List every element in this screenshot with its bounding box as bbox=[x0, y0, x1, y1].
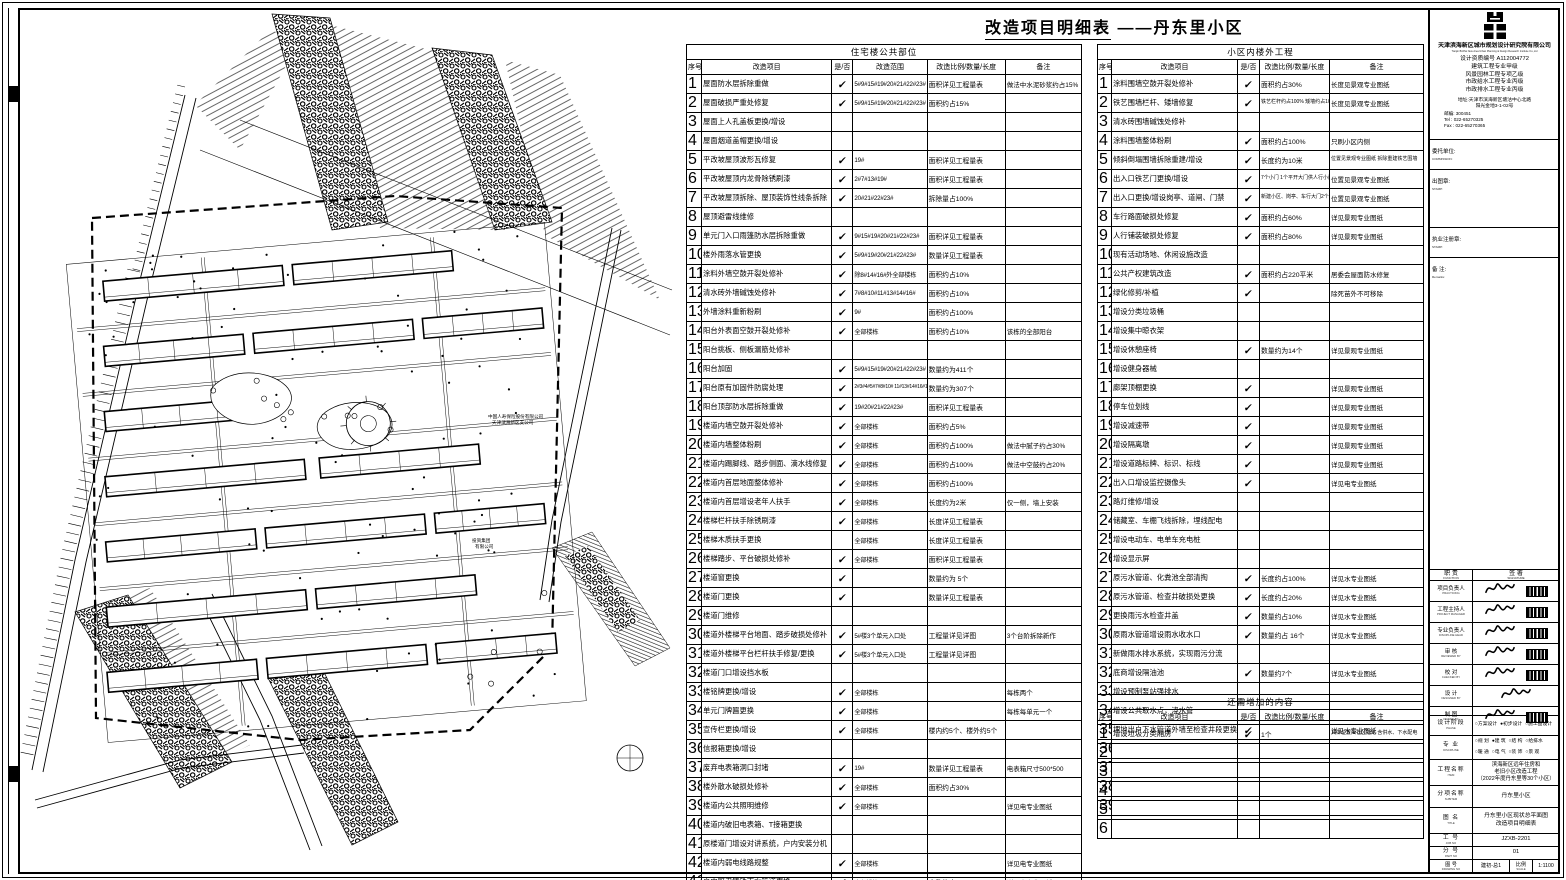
cell-item: 废弃电表箱洞口封堵 bbox=[702, 759, 832, 778]
cell-note: 仅一侧，墙上安装 bbox=[1005, 493, 1081, 512]
cell-ratio: 楼内约5个、楼外约5个 bbox=[927, 721, 1005, 740]
outdoor-header: 是/否 bbox=[1238, 60, 1260, 75]
cell-n: 9 bbox=[687, 227, 702, 246]
cell-ratio: 长度约为10米 bbox=[1260, 151, 1330, 170]
cell-scope: 全部楼栋 bbox=[853, 512, 927, 531]
check-icon: ✔ bbox=[837, 592, 847, 604]
cell-scope: 全部楼栋 bbox=[853, 778, 927, 797]
table-row: 15增设休憩座椅✔数量约为14个详见景观专业图纸 bbox=[1098, 341, 1424, 360]
cell-item: 更换雨污水检查井盖 bbox=[1112, 607, 1238, 626]
cell-note: 详见水专业图纸 bbox=[1005, 873, 1081, 880]
cell-note bbox=[1330, 531, 1424, 550]
role-name-en: PROJECT MANAGER bbox=[1437, 613, 1465, 616]
cell-yes bbox=[832, 113, 853, 132]
cell-item: 阳台挑板、侧板漏筋处修补 bbox=[702, 341, 832, 360]
cell-n: 13 bbox=[687, 303, 702, 322]
cell-yes: ✔ bbox=[1238, 664, 1260, 683]
check-icon: ✔ bbox=[837, 630, 847, 642]
cell-scope: 5#9#15#19#20#21#22#23# bbox=[853, 360, 927, 379]
cell-yes: ✔ bbox=[1238, 417, 1260, 436]
check-icon: ✔ bbox=[837, 98, 847, 110]
table-row: 22楼道内首层地面整体修补✔全部楼栋面积约占100% bbox=[687, 474, 1082, 493]
cell-ratio: 面积约占100% bbox=[927, 436, 1005, 455]
table-row: 2铁艺围墙栏杆、矮墙修复✔铁艺栏杆约占100% 矮墙约占10%长度见景观专业图纸 bbox=[1098, 94, 1424, 113]
table-row: 34单元门牌匾更换✔全部楼栋每栋每单元一个 bbox=[687, 702, 1082, 721]
table-row: 17廊架顶棚更换✔详见景观专业图纸 bbox=[1098, 379, 1424, 398]
cell-n: 20 bbox=[1098, 436, 1112, 455]
cell-ratio: 数量约为14个 bbox=[1260, 341, 1330, 360]
cell-n: 25 bbox=[687, 531, 702, 550]
cell-note bbox=[1005, 721, 1081, 740]
remarks-section: 备 注:Remarks: bbox=[1430, 258, 1559, 570]
cell-n: 40 bbox=[687, 816, 702, 835]
check-icon: ✔ bbox=[837, 326, 847, 338]
outdoor-header: 序号 bbox=[1098, 60, 1112, 75]
table-row: 9人行铺装破损处修复✔面积约占80%详见景观专业图纸 bbox=[1098, 227, 1424, 246]
function-header: 职 责FUNCTION bbox=[1430, 570, 1473, 580]
additional-header: 改造比例/数量/长度 bbox=[1260, 710, 1330, 725]
cell-note: 长度见景观专业图纸 bbox=[1330, 94, 1424, 113]
cell-yes: ✔ bbox=[1238, 265, 1260, 284]
cell-yes: ✔ bbox=[832, 189, 853, 208]
cell-scope: 9# bbox=[853, 303, 927, 322]
cell-item: 楼道内踢脚线、踏步侧面、滴水线修复 bbox=[702, 455, 832, 474]
cell-yes: ✔ bbox=[832, 512, 853, 531]
signature-area bbox=[1473, 623, 1559, 643]
role-label: 审 核REVIEWED BY bbox=[1430, 644, 1473, 664]
table-row: 43户内厨卫铸铁下水管道更换✔全部楼栋户数约占10%详见水专业图纸 bbox=[687, 873, 1082, 880]
table-row: 25增设电动车、电单车充电桩 bbox=[1098, 531, 1424, 550]
signature-area bbox=[1473, 602, 1559, 622]
cell-ratio: 数量约占10% bbox=[1260, 607, 1330, 626]
table-row: 37废弃电表箱洞口封堵✔19#数量详见工程量表电表箱尺寸500*500 bbox=[687, 759, 1082, 778]
cell-yes bbox=[832, 835, 853, 854]
cell-n: 12 bbox=[687, 284, 702, 303]
cell-ratio bbox=[1260, 782, 1330, 801]
cell-n: 6 bbox=[1098, 820, 1112, 839]
cell-n: 29 bbox=[687, 607, 702, 626]
cell-n: 33 bbox=[687, 683, 702, 702]
cell-yes: ✔ bbox=[832, 265, 853, 284]
table-row: 9单元门入口雨篷防水层拆除重做✔9#15#19#20#21#22#23#面积详见… bbox=[687, 227, 1082, 246]
cell-yes: ✔ bbox=[1238, 151, 1260, 170]
cell-yes: ✔ bbox=[832, 493, 853, 512]
cell-n: 19 bbox=[1098, 417, 1112, 436]
cell-yes: ✔ bbox=[1238, 626, 1260, 645]
cell-note: 详见景观专业图纸 bbox=[1330, 379, 1424, 398]
signature-area bbox=[1473, 665, 1559, 685]
cell-ratio bbox=[1260, 113, 1330, 132]
cell-ratio: 长度详见工程量表 bbox=[927, 531, 1005, 550]
cell-note bbox=[1330, 512, 1424, 531]
cell-item: 增设健身器械 bbox=[1112, 360, 1238, 379]
cell-yes: ✔ bbox=[832, 474, 853, 493]
cell-n: 36 bbox=[687, 740, 702, 759]
cell-scope bbox=[853, 588, 927, 607]
check-icon: ✔ bbox=[837, 364, 847, 376]
table-row: 7出入口更换/增设岗亭、道闸、门禁✔新建小区、岗亭、车行大门2个， 道闸2个、各… bbox=[1098, 189, 1424, 208]
cell-item: 清水砖外墙碱蚀处修补 bbox=[702, 284, 832, 303]
cell-note: 每栋两个 bbox=[1005, 683, 1081, 702]
cell-yes bbox=[1238, 322, 1260, 341]
signature-header: 签 署SIGNATURE bbox=[1473, 570, 1559, 580]
cell-ratio bbox=[927, 797, 1005, 816]
cell-note bbox=[1005, 284, 1081, 303]
cell-item: 楼道内首层地面整体修补 bbox=[702, 474, 832, 493]
cell-item: 出入口更换/增设岗亭、道闸、门禁 bbox=[1112, 189, 1238, 208]
cell-n: 29 bbox=[1098, 607, 1112, 626]
cell-ratio bbox=[927, 113, 1005, 132]
cell-ratio bbox=[1260, 820, 1330, 839]
scale-value: 1:1100 bbox=[1533, 860, 1559, 874]
cell-item: 新做雨水排水系统，实现雨污分流 bbox=[1112, 645, 1238, 664]
cell-note: 每栋每单元一个 bbox=[1005, 702, 1081, 721]
cell-n: 8 bbox=[1098, 208, 1112, 227]
cell-n: 6 bbox=[687, 170, 702, 189]
cell-ratio: 数量详见工程量表 bbox=[927, 588, 1005, 607]
cell-n: 21 bbox=[1098, 455, 1112, 474]
check-icon: ✔ bbox=[837, 459, 847, 471]
cell-note bbox=[1005, 588, 1081, 607]
cell-yes: ✔ bbox=[832, 417, 853, 436]
cell-ratio: 面积约占10% bbox=[927, 284, 1005, 303]
role-name-en: PRACTICING bbox=[1442, 592, 1459, 595]
cell-note bbox=[1330, 645, 1424, 664]
cell-yes: ✔ bbox=[1238, 569, 1260, 588]
cell-note: 居委会屋面防水修复 bbox=[1330, 265, 1424, 284]
cell-item: 信报箱更换/增设 bbox=[702, 740, 832, 759]
cell-note bbox=[1330, 360, 1424, 379]
cell-item: 楼道外楼梯平台栏杆扶手修复/更换 bbox=[702, 645, 832, 664]
check-icon: ✔ bbox=[837, 174, 847, 186]
cell-ratio: 长度约占100% bbox=[1260, 569, 1330, 588]
check-icon: ✔ bbox=[837, 269, 847, 281]
cell-note: 电表箱尺寸500*500 bbox=[1005, 759, 1081, 778]
cell-ratio: 面积约占15% bbox=[927, 94, 1005, 113]
cell-note: 详见水专业图纸 bbox=[1330, 664, 1424, 683]
cell-ratio: 面积约占220平米 bbox=[1260, 265, 1330, 284]
cell-ratio bbox=[1260, 246, 1330, 265]
table-row: 5 bbox=[1098, 801, 1424, 820]
cell-n: 4 bbox=[1098, 782, 1112, 801]
cell-n: 35 bbox=[687, 721, 702, 740]
cell-note: 3个台阶拆除新作 bbox=[1005, 626, 1081, 645]
cell-n: 23 bbox=[687, 493, 702, 512]
drawing-sheet: 中国人寿保险股份有限公司天津滨海新区支公司 投资集团有限公司 改造项目明细表 —… bbox=[0, 0, 1566, 880]
table-row: 6出入口铁艺门更换/增设✔7个小门 1个平开大门供人行小门1处位置见景观专业图纸 bbox=[1098, 170, 1424, 189]
cell-ratio bbox=[1260, 493, 1330, 512]
cell-n: 17 bbox=[1098, 379, 1112, 398]
table-row: 28原污水管道、检查井破损处更换✔长度约占20%详见水专业图纸 bbox=[1098, 588, 1424, 607]
cell-ratio: 拆除量占100% bbox=[927, 189, 1005, 208]
check-icon: ✔ bbox=[1244, 269, 1254, 281]
cell-item bbox=[1112, 801, 1238, 820]
check-icon: ✔ bbox=[837, 801, 847, 813]
cell-item: 宣传栏更换/增设 bbox=[702, 721, 832, 740]
role-label: 专业负责人DISCIPLINE HEAD bbox=[1430, 623, 1473, 643]
check-icon: ✔ bbox=[837, 440, 847, 452]
cell-item bbox=[1112, 744, 1238, 763]
cell-n: 1 bbox=[687, 75, 702, 94]
cell-scope: 全部楼栋 bbox=[853, 531, 927, 550]
role-label: 工程主持人PROJECT MANAGER bbox=[1430, 602, 1473, 622]
cell-ratio: 面积约占60% bbox=[1260, 208, 1330, 227]
cell-item: 绿化修剪/补植 bbox=[1112, 284, 1238, 303]
cell-yes: ✔ bbox=[832, 683, 853, 702]
check-icon: ✔ bbox=[1244, 212, 1254, 224]
cell-scope: 5#9#19#20#21#22#23# bbox=[853, 246, 927, 265]
cell-n: 32 bbox=[1098, 664, 1112, 683]
check-icon: ✔ bbox=[1244, 592, 1254, 604]
part-number-value: 01 bbox=[1473, 847, 1559, 859]
check-icon: ✔ bbox=[837, 725, 847, 737]
drawing-title-value: 丹东里小区现状总平面图 改造项目明细表 bbox=[1473, 808, 1559, 833]
check-icon: ✔ bbox=[1244, 174, 1254, 186]
check-icon: ✔ bbox=[837, 307, 847, 319]
job-number-section: 工 号JOB NO JZXB-2201 bbox=[1430, 834, 1559, 847]
residential-header: 改造比例/数量/长度 bbox=[927, 60, 1005, 75]
cell-note: 详见电专业图纸 bbox=[1330, 474, 1424, 493]
cell-n: 25 bbox=[1098, 531, 1112, 550]
cell-n: 22 bbox=[1098, 474, 1112, 493]
cell-item: 楼道门口增设挡水板 bbox=[702, 664, 832, 683]
cell-item: 增设显示屏 bbox=[1112, 550, 1238, 569]
phase-section: 设计阶段PHASE ○方案设计●初步设计○施工图设计 bbox=[1430, 716, 1559, 736]
cell-yes: ✔ bbox=[832, 227, 853, 246]
cell-note bbox=[1005, 474, 1081, 493]
frame-mark-bottom bbox=[9, 766, 18, 782]
cell-note bbox=[1005, 816, 1081, 835]
cell-ratio bbox=[1260, 512, 1330, 531]
cell-n: 15 bbox=[1098, 341, 1112, 360]
check-icon: ✔ bbox=[1244, 136, 1254, 148]
role-label: 设 计DESIGNED BY bbox=[1430, 686, 1473, 706]
drawing-number-section: 图 号DRAWING NO 建初-总1 比例SCALE 1:1100 bbox=[1430, 860, 1559, 874]
cell-item: 出入口增设监控摄像头 bbox=[1112, 474, 1238, 493]
cell-note bbox=[1005, 569, 1081, 588]
cell-yes: ✔ bbox=[1238, 94, 1260, 113]
cell-note bbox=[1330, 801, 1424, 820]
check-icon: ✔ bbox=[1244, 193, 1254, 205]
cell-item: 楼梯木质扶手更换 bbox=[702, 531, 832, 550]
cell-item: 涂料围墙空鼓开裂处修补 bbox=[1112, 75, 1238, 94]
cell-n: 13 bbox=[1098, 303, 1112, 322]
cell-ratio bbox=[1260, 303, 1330, 322]
table-row: 13增设分类垃圾桶 bbox=[1098, 303, 1424, 322]
cell-n: 3 bbox=[1098, 113, 1112, 132]
cell-yes bbox=[1238, 645, 1260, 664]
cell-yes: ✔ bbox=[832, 151, 853, 170]
cell-ratio: 面积约占100% bbox=[1260, 132, 1330, 151]
stamp-section: 出图章:STAMP: bbox=[1430, 170, 1559, 228]
cell-n: 28 bbox=[687, 588, 702, 607]
cell-scope: 20#21#22#23# bbox=[853, 189, 927, 208]
name-stamp bbox=[1526, 649, 1548, 660]
cell-item: 楼道内墙整体粉刷 bbox=[702, 436, 832, 455]
cell-note bbox=[1005, 227, 1081, 246]
cell-item: 涂料外墙空鼓开裂处修补 bbox=[702, 265, 832, 284]
cell-ratio: 面积详见工程量表 bbox=[927, 170, 1005, 189]
residential-header: 序号 bbox=[687, 60, 702, 75]
option-unselected: ○景 观 bbox=[1525, 750, 1539, 756]
cell-ratio: 数量详见工程量表 bbox=[927, 246, 1005, 265]
cell-n: 39 bbox=[687, 797, 702, 816]
table-row: 29楼道门维修 bbox=[687, 607, 1082, 626]
credential-line: 设计资质编号 A112004772 bbox=[1430, 56, 1559, 64]
cell-yes: ✔ bbox=[832, 170, 853, 189]
cell-yes: ✔ bbox=[1238, 227, 1260, 246]
cell-n: 27 bbox=[687, 569, 702, 588]
additional-table: 还需增加的内容序号改造项目是/否改造比例/数量/长度备注1增设垃圾分类厢房✔1个… bbox=[1097, 694, 1424, 839]
cell-item: 楼道内首层增设老年人扶手 bbox=[702, 493, 832, 512]
cell-ratio bbox=[927, 740, 1005, 759]
table-row: 30楼道外楼梯平台地面、踏步破损处修补✔5#楼3个单元入口处工程量详见详图3个台… bbox=[687, 626, 1082, 645]
cell-note bbox=[1005, 531, 1081, 550]
check-icon: ✔ bbox=[837, 858, 847, 870]
cell-note: 该栋的全部阳台 bbox=[1005, 322, 1081, 341]
cell-scope: 19# bbox=[853, 759, 927, 778]
cell-note bbox=[1005, 265, 1081, 284]
cell-item: 屋面破损严重处修复 bbox=[702, 94, 832, 113]
table-row: 21增设道路标牌、标识、标线✔详见景观专业图纸 bbox=[1098, 455, 1424, 474]
cell-yes: ✔ bbox=[1238, 132, 1260, 151]
cell-n: 12 bbox=[1098, 284, 1112, 303]
cell-item: 屋面上人孔盖板更换/增设 bbox=[702, 113, 832, 132]
table-row: 12绿化修剪/补植✔除死苗外不可移除 bbox=[1098, 284, 1424, 303]
cell-ratio: 数量约为307个 bbox=[927, 379, 1005, 398]
cell-n: 17 bbox=[687, 379, 702, 398]
cell-yes: ✔ bbox=[832, 303, 853, 322]
cell-n: 2 bbox=[1098, 94, 1112, 113]
cell-ratio: 工程量详见详图 bbox=[927, 645, 1005, 664]
additional-header: 改造项目 bbox=[1112, 710, 1238, 725]
cell-note: 详见水专业图纸 bbox=[1330, 607, 1424, 626]
option-unselected: ○电 气 bbox=[1492, 750, 1506, 756]
cell-n: 14 bbox=[687, 322, 702, 341]
cell-note bbox=[1005, 664, 1081, 683]
cell-yes: ✔ bbox=[832, 284, 853, 303]
cell-n: 28 bbox=[1098, 588, 1112, 607]
cell-n: 1 bbox=[1098, 725, 1112, 744]
cell-yes bbox=[1238, 550, 1260, 569]
cell-ratio bbox=[927, 854, 1005, 873]
cell-scope bbox=[853, 816, 927, 835]
cell-note bbox=[1005, 379, 1081, 398]
cell-note: 详见景观专业图纸 bbox=[1330, 341, 1424, 360]
cell-yes bbox=[832, 341, 853, 360]
table-row: 20增设隔离墩✔详见景观专业图纸 bbox=[1098, 436, 1424, 455]
role-row: 校 对CHECKED BY bbox=[1430, 665, 1559, 686]
table-row: 4 bbox=[1098, 782, 1424, 801]
check-icon: ✔ bbox=[837, 383, 847, 395]
cell-n: 7 bbox=[1098, 189, 1112, 208]
table-row: 18停车位划线✔详见景观专业图纸 bbox=[1098, 398, 1424, 417]
cell-yes: ✔ bbox=[832, 398, 853, 417]
table-row: 3屋面上人孔盖板更换/增设 bbox=[687, 113, 1082, 132]
cell-item: 增设道路标牌、标识、标线 bbox=[1112, 455, 1238, 474]
part-number-section: 分 号PART NO 01 bbox=[1430, 847, 1559, 860]
cell-n: 42 bbox=[687, 854, 702, 873]
cell-note bbox=[1330, 782, 1424, 801]
check-icon: ✔ bbox=[1244, 345, 1254, 357]
cell-note bbox=[1005, 398, 1081, 417]
remarks-label-en: Remarks: bbox=[1432, 276, 1446, 279]
cell-yes: ✔ bbox=[1238, 75, 1260, 94]
table-row: 11公共产权建筑改造✔面积约占220平米居委会屋面防水修复 bbox=[1098, 265, 1424, 284]
cell-ratio bbox=[1260, 455, 1330, 474]
cell-n: 31 bbox=[687, 645, 702, 664]
cell-yes: ✔ bbox=[1238, 725, 1260, 744]
cell-n: 16 bbox=[687, 360, 702, 379]
cell-item: 原污水管道、化粪池全部清掏 bbox=[1112, 569, 1238, 588]
cell-ratio: 数量约为 5个 bbox=[927, 569, 1005, 588]
table-row: 2屋面破损严重处修复✔5#9#15#19#20#21#22#23#面积约占15% bbox=[687, 94, 1082, 113]
signature-scribble bbox=[1500, 686, 1532, 706]
table-row: 6 bbox=[1098, 820, 1424, 839]
cell-scope: 5#楼3个单元入口处 bbox=[853, 626, 927, 645]
cell-n: 34 bbox=[687, 702, 702, 721]
cell-n: 10 bbox=[1098, 246, 1112, 265]
cell-note bbox=[1330, 550, 1424, 569]
cell-yes: ✔ bbox=[832, 75, 853, 94]
cell-ratio bbox=[927, 702, 1005, 721]
cell-yes bbox=[1238, 303, 1260, 322]
cell-n: 4 bbox=[1098, 132, 1112, 151]
check-icon: ✔ bbox=[1244, 79, 1254, 91]
cell-note bbox=[1005, 341, 1081, 360]
cell-ratio: 1个 bbox=[1260, 725, 1330, 744]
cell-yes: ✔ bbox=[832, 322, 853, 341]
cell-note bbox=[1005, 550, 1081, 569]
check-icon: ✔ bbox=[1244, 630, 1254, 642]
drawing-number-value: 建初-总1 bbox=[1473, 860, 1510, 874]
cell-yes bbox=[1238, 763, 1260, 782]
role-name-en: DISCIPLINE HEAD bbox=[1439, 634, 1463, 637]
check-icon: ✔ bbox=[1244, 402, 1254, 414]
cell-item: 增设垃圾分类厢房 bbox=[1112, 725, 1238, 744]
cell-item: 原雨水管道增设雨水收水口 bbox=[1112, 626, 1238, 645]
company-name-en: Tianjin BinHai New Area Urban Planning &… bbox=[1436, 49, 1552, 53]
cell-yes: ✔ bbox=[1238, 379, 1260, 398]
cell-item: 楼道外楼梯平台地面、踏步破损处修补 bbox=[702, 626, 832, 645]
signature-scribble bbox=[1484, 602, 1516, 622]
cell-item: 楼梯栏杆扶手除锈刷漆 bbox=[702, 512, 832, 531]
commission-section: 委托单位:COMMISSION: bbox=[1430, 140, 1559, 170]
cell-yes bbox=[1238, 360, 1260, 379]
signature-scribble bbox=[1484, 623, 1516, 643]
table-row: 16增设健身器械 bbox=[1098, 360, 1424, 379]
cell-ratio: 数量约为411个 bbox=[927, 360, 1005, 379]
cell-item: 公共产权建筑改造 bbox=[1112, 265, 1238, 284]
cell-n: 1 bbox=[1098, 75, 1112, 94]
table-row: 3 bbox=[1098, 763, 1424, 782]
signature-scribble bbox=[1484, 581, 1516, 601]
sheet-title-main: 改造项目明细表 bbox=[985, 20, 1111, 40]
cell-item: 平改坡屋顶拆除、屋顶装饰性线条拆除 bbox=[702, 189, 832, 208]
check-icon: ✔ bbox=[837, 288, 847, 300]
table-row: 36信报箱更换/增设 bbox=[687, 740, 1082, 759]
cell-ratio bbox=[1260, 645, 1330, 664]
cell-item: 现有活动场地、休闲设施改造 bbox=[1112, 246, 1238, 265]
additional-title: 还需增加的内容 bbox=[1098, 695, 1424, 710]
table-row: 31新做雨水排水系统，实现雨污分流 bbox=[1098, 645, 1424, 664]
cell-yes: ✔ bbox=[1238, 436, 1260, 455]
cell-item: 楼道内弱电线路规整 bbox=[702, 854, 832, 873]
option-unselected: ○给排水 bbox=[1525, 739, 1542, 745]
cell-scope: 全部楼栋 bbox=[853, 417, 927, 436]
cell-item: 阳台顶部防水层拆除重做 bbox=[702, 398, 832, 417]
cell-ratio: 面积详见工程量表 bbox=[927, 75, 1005, 94]
